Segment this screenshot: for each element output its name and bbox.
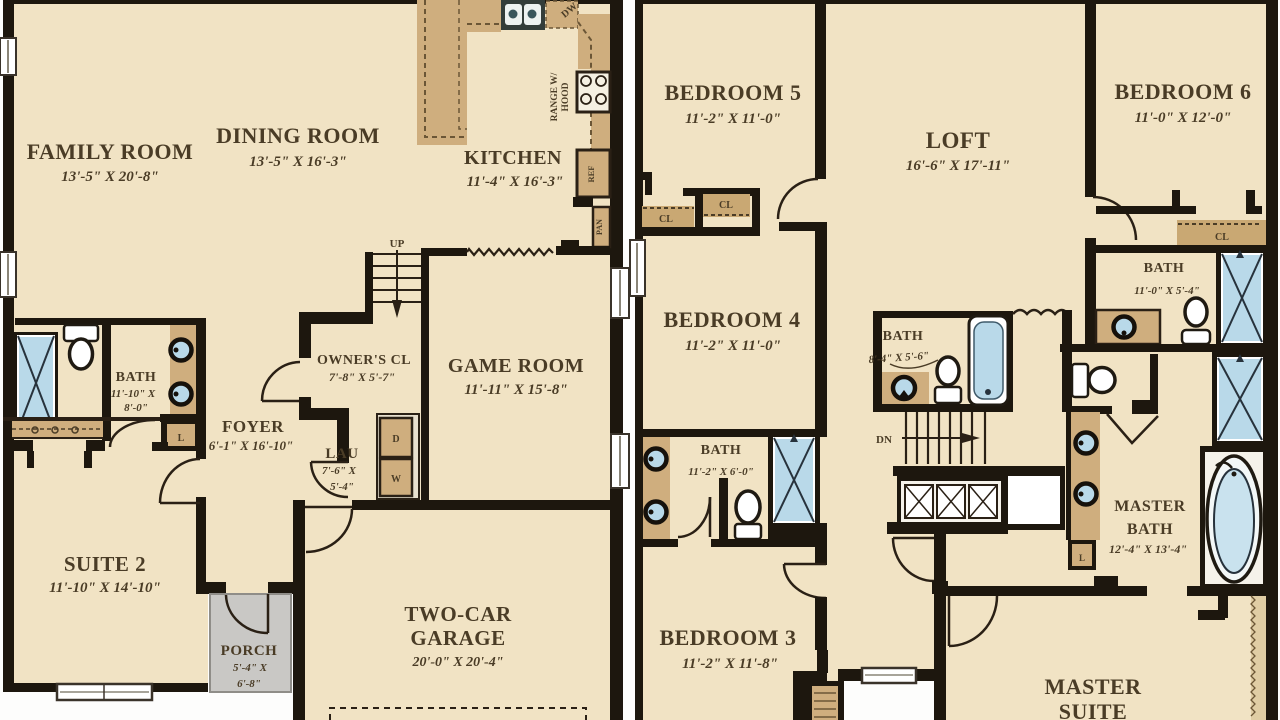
svg-text:8'-0": 8'-0" — [124, 402, 148, 414]
svg-text:UP: UP — [390, 238, 405, 250]
svg-text:PAN: PAN — [595, 219, 604, 235]
svg-text:PORCH: PORCH — [221, 643, 278, 659]
svg-text:CL: CL — [1215, 232, 1229, 243]
svg-text:DN: DN — [876, 434, 892, 446]
svg-text:DINING ROOM: DINING ROOM — [216, 123, 380, 148]
svg-text:20'-0" X 20'-4": 20'-0" X 20'-4" — [412, 655, 504, 670]
svg-text:GARAGE: GARAGE — [410, 626, 505, 650]
svg-text:BEDROOM 6: BEDROOM 6 — [1114, 79, 1251, 104]
svg-text:6'-8": 6'-8" — [237, 678, 261, 690]
svg-text:BATH: BATH — [1127, 521, 1173, 538]
svg-text:11'-10" X: 11'-10" X — [111, 388, 156, 400]
svg-text:7'-8" X 5'-7": 7'-8" X 5'-7" — [329, 370, 395, 384]
svg-text:11'-0" X 12'-0": 11'-0" X 12'-0" — [1135, 110, 1232, 126]
svg-text:W: W — [391, 474, 401, 485]
svg-text:OWNER'S CL: OWNER'S CL — [317, 353, 411, 368]
svg-text:HOOD: HOOD — [561, 82, 571, 111]
svg-text:MASTER: MASTER — [1044, 674, 1142, 699]
svg-text:L: L — [178, 433, 185, 444]
svg-text:LOFT: LOFT — [926, 128, 991, 153]
svg-text:BEDROOM 3: BEDROOM 3 — [659, 625, 796, 650]
svg-text:13'-5" X 20'-8": 13'-5" X 20'-8" — [61, 169, 159, 185]
svg-text:FAMILY ROOM: FAMILY ROOM — [27, 139, 194, 164]
svg-text:D: D — [392, 434, 399, 445]
svg-text:7'-6" X: 7'-6" X — [322, 465, 357, 477]
svg-text:RANGE W/: RANGE W/ — [550, 72, 560, 121]
svg-text:5'-4" X: 5'-4" X — [233, 662, 268, 674]
svg-text:TWO-CAR: TWO-CAR — [404, 602, 512, 626]
svg-text:SUITE 2: SUITE 2 — [64, 552, 146, 576]
svg-text:BEDROOM 4: BEDROOM 4 — [663, 307, 800, 332]
svg-text:BATH: BATH — [116, 370, 157, 385]
svg-text:CL: CL — [719, 200, 733, 211]
svg-text:11'-11" X 15'-8": 11'-11" X 15'-8" — [464, 382, 567, 398]
svg-text:L: L — [1079, 553, 1085, 563]
svg-text:BATH: BATH — [883, 329, 924, 344]
svg-text:11'-10" X 14'-10": 11'-10" X 14'-10" — [49, 580, 161, 596]
svg-text:BATH: BATH — [1144, 261, 1185, 276]
svg-text:16'-6" X 17'-11": 16'-6" X 17'-11" — [906, 158, 1010, 174]
svg-text:REF: REF — [586, 166, 596, 183]
svg-text:KITCHEN: KITCHEN — [464, 147, 562, 169]
svg-text:MASTER: MASTER — [1114, 498, 1185, 515]
svg-text:12'-4" X 13'-4": 12'-4" X 13'-4" — [1109, 542, 1187, 556]
svg-text:CL: CL — [659, 214, 673, 225]
svg-text:13'-5" X 16'-3": 13'-5" X 16'-3" — [249, 154, 347, 170]
svg-text:11'-2" X 6'-0": 11'-2" X 6'-0" — [688, 466, 753, 478]
svg-text:BEDROOM 5: BEDROOM 5 — [664, 80, 801, 105]
svg-text:11'-2" X 11'-0": 11'-2" X 11'-0" — [685, 338, 781, 354]
svg-text:LAU: LAU — [325, 446, 358, 462]
svg-text:5'-4": 5'-4" — [330, 481, 354, 493]
svg-text:SUITE: SUITE — [1059, 699, 1128, 720]
svg-text:11'-4" X 16'-3": 11'-4" X 16'-3" — [467, 174, 564, 190]
svg-text:6'-1" X 16'-10": 6'-1" X 16'-10" — [209, 438, 294, 453]
svg-text:FOYER: FOYER — [222, 417, 284, 436]
svg-text:BATH: BATH — [701, 443, 742, 458]
svg-text:GAME ROOM: GAME ROOM — [448, 355, 584, 377]
svg-text:11'-2" X 11'-0": 11'-2" X 11'-0" — [685, 111, 781, 127]
svg-text:11'-0" X 5'-4": 11'-0" X 5'-4" — [1134, 285, 1199, 297]
svg-text:11'-2" X 11'-8": 11'-2" X 11'-8" — [682, 656, 778, 672]
